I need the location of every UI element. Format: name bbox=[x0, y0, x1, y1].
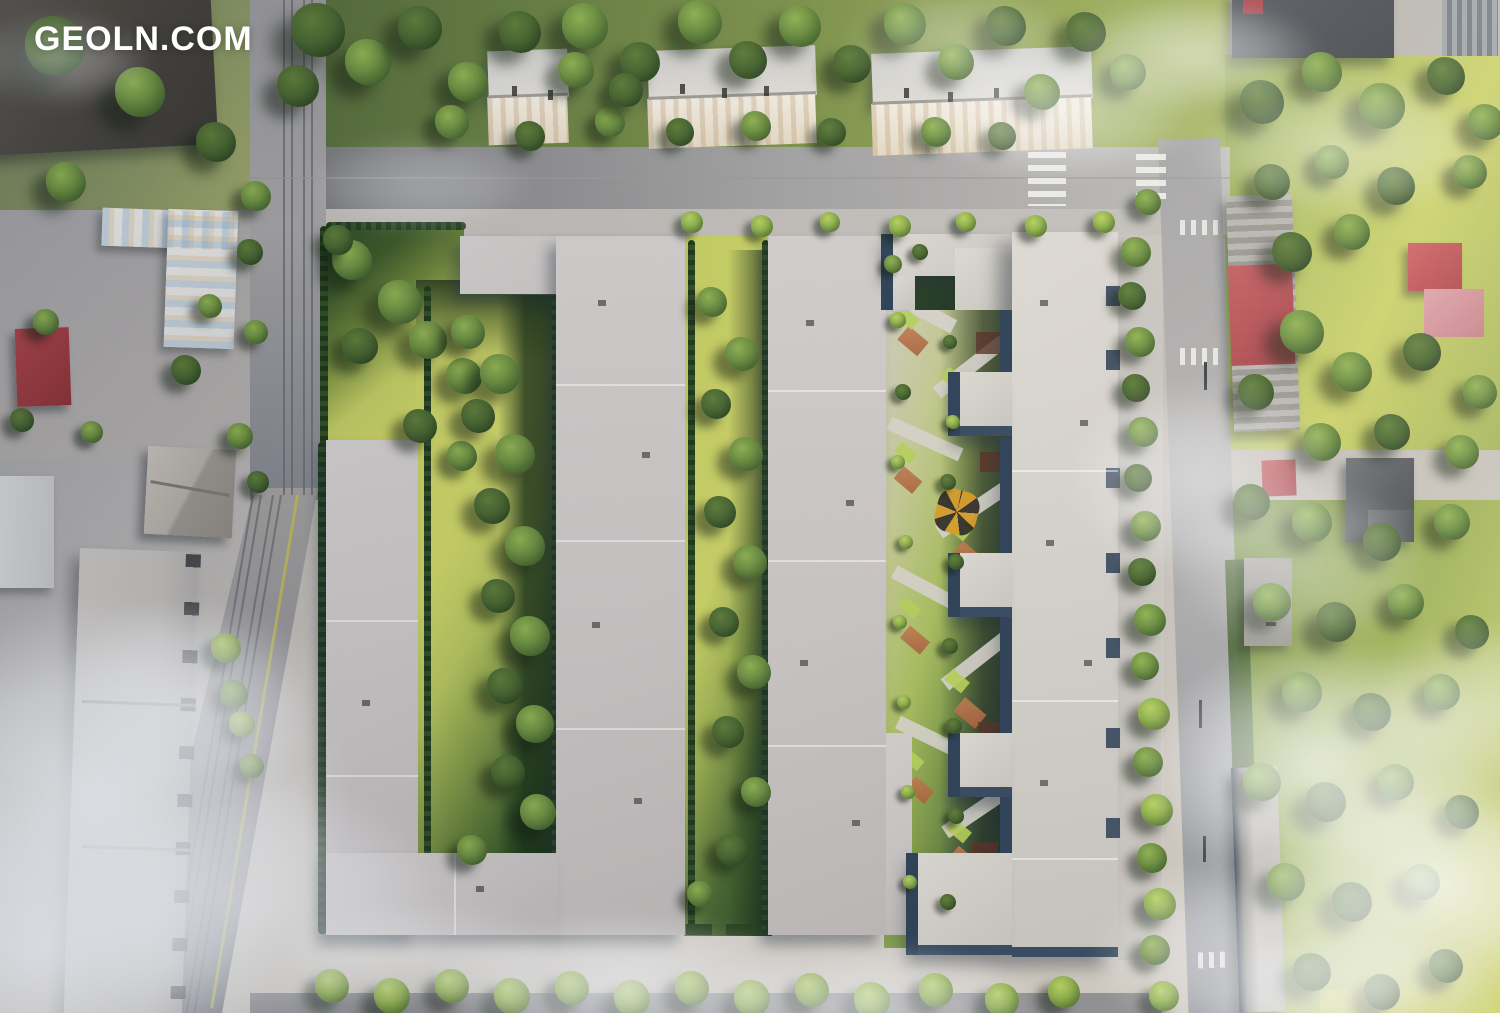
tree bbox=[891, 455, 905, 469]
crosswalk bbox=[1180, 220, 1220, 235]
tree bbox=[198, 294, 222, 318]
existing-house-roof-upper bbox=[487, 49, 569, 100]
tree bbox=[10, 408, 34, 432]
tree bbox=[940, 474, 956, 490]
tree bbox=[893, 615, 907, 629]
building-C-west-face bbox=[948, 733, 960, 797]
chimney bbox=[512, 86, 517, 96]
tree bbox=[520, 794, 556, 830]
tree bbox=[884, 255, 902, 273]
red-roof-house-right bbox=[1408, 243, 1462, 291]
chimney bbox=[548, 90, 553, 100]
roof-vent bbox=[800, 660, 808, 666]
tree bbox=[1374, 414, 1410, 450]
chimney bbox=[764, 86, 769, 96]
roof-seam bbox=[1012, 858, 1118, 860]
tree bbox=[33, 309, 59, 335]
tree bbox=[1332, 352, 1372, 392]
tree bbox=[890, 312, 906, 328]
pink-roof-house bbox=[1424, 289, 1484, 337]
tree bbox=[491, 755, 525, 789]
building-C-main bbox=[1012, 232, 1118, 955]
tree bbox=[737, 655, 771, 689]
tree bbox=[901, 785, 915, 799]
roof-vent bbox=[1040, 300, 1048, 306]
fog-cloud bbox=[10, 570, 370, 830]
roof-vent bbox=[1084, 660, 1092, 666]
tree bbox=[903, 875, 917, 889]
tree bbox=[1025, 215, 1047, 237]
tree bbox=[818, 118, 846, 146]
tree bbox=[171, 355, 201, 385]
roof-vent bbox=[1040, 780, 1048, 786]
tree bbox=[277, 65, 319, 107]
tree bbox=[946, 718, 962, 734]
tree bbox=[481, 579, 515, 613]
tree bbox=[701, 389, 731, 419]
tree bbox=[227, 423, 253, 449]
tree bbox=[940, 894, 956, 910]
tree bbox=[342, 328, 378, 364]
roof-seam bbox=[556, 728, 685, 730]
tree bbox=[943, 335, 957, 349]
tree bbox=[733, 545, 767, 579]
tree bbox=[562, 3, 608, 49]
roof-vent bbox=[806, 320, 814, 326]
tree bbox=[81, 421, 103, 443]
roof-seam bbox=[556, 540, 685, 542]
tree bbox=[510, 616, 550, 656]
building-C-west-face bbox=[1000, 310, 1012, 372]
tree bbox=[729, 437, 763, 471]
building-C-south-face bbox=[960, 426, 1012, 436]
tree bbox=[241, 181, 271, 211]
tree bbox=[704, 496, 736, 528]
tree bbox=[1463, 375, 1497, 409]
tree bbox=[895, 384, 911, 400]
tree bbox=[1135, 189, 1161, 215]
fog-cloud bbox=[240, 885, 600, 1013]
building-B-bar bbox=[768, 236, 886, 935]
building-C-west-face bbox=[1000, 437, 1012, 553]
tree bbox=[897, 695, 911, 709]
tree bbox=[609, 73, 643, 107]
tree bbox=[499, 11, 541, 53]
fog-cloud bbox=[270, 120, 570, 250]
tree bbox=[946, 415, 960, 429]
tree bbox=[409, 321, 447, 359]
tree bbox=[1280, 310, 1324, 354]
roof-vent bbox=[852, 820, 860, 826]
tree bbox=[291, 3, 345, 57]
tree bbox=[889, 215, 911, 237]
building-A-right-bar bbox=[556, 236, 685, 935]
tree bbox=[716, 834, 748, 866]
tree bbox=[244, 320, 268, 344]
tree bbox=[495, 434, 535, 474]
tree bbox=[709, 607, 739, 637]
tree bbox=[345, 39, 391, 85]
building-C-south-face bbox=[960, 787, 1012, 797]
building-C-top-wing-left bbox=[893, 276, 915, 310]
tree bbox=[505, 526, 545, 566]
striped-canopy-topright bbox=[1442, 0, 1498, 56]
tree bbox=[196, 122, 236, 162]
tree bbox=[447, 441, 477, 471]
tree bbox=[247, 471, 269, 493]
chimney bbox=[680, 84, 685, 94]
tree bbox=[666, 118, 694, 146]
tree bbox=[729, 41, 767, 79]
tree bbox=[1403, 333, 1441, 371]
tree bbox=[820, 212, 840, 232]
watermark-logo: GEOLN.COM bbox=[34, 20, 253, 59]
tree bbox=[1121, 237, 1151, 267]
tree bbox=[741, 111, 771, 141]
roof-vent bbox=[846, 500, 854, 506]
tree bbox=[899, 535, 913, 549]
tree bbox=[461, 399, 495, 433]
roof-seam bbox=[556, 384, 685, 386]
roof-vent bbox=[592, 622, 600, 628]
tree bbox=[697, 287, 727, 317]
tree bbox=[751, 215, 773, 237]
tree bbox=[678, 0, 722, 44]
mottle-texture bbox=[164, 209, 239, 349]
roof-vent bbox=[642, 452, 650, 458]
tree bbox=[558, 52, 594, 88]
tree bbox=[1093, 211, 1115, 233]
tree bbox=[237, 239, 263, 265]
red-roof-house bbox=[15, 327, 72, 407]
chimney bbox=[722, 88, 727, 98]
tree bbox=[595, 107, 625, 137]
balcony-notch bbox=[1106, 638, 1120, 658]
tree bbox=[487, 668, 523, 704]
tree bbox=[516, 705, 554, 743]
tree bbox=[446, 358, 482, 394]
tree bbox=[912, 244, 928, 260]
roof-seam bbox=[1012, 700, 1118, 702]
tree bbox=[712, 716, 744, 748]
hedge bbox=[424, 286, 431, 856]
roof-seam bbox=[326, 620, 418, 622]
tree bbox=[1125, 327, 1155, 357]
tree bbox=[474, 488, 510, 524]
tree bbox=[403, 409, 437, 443]
tree bbox=[956, 212, 976, 232]
tree bbox=[398, 6, 442, 50]
tree bbox=[1118, 282, 1146, 310]
building-C-west-face bbox=[1000, 617, 1012, 733]
roof-vent bbox=[634, 798, 642, 804]
tree bbox=[948, 808, 964, 824]
tree bbox=[725, 337, 759, 371]
tree bbox=[378, 280, 422, 324]
hedge bbox=[320, 226, 328, 451]
building-C-south-face bbox=[960, 607, 1012, 617]
tree bbox=[480, 354, 520, 394]
tree bbox=[942, 638, 958, 654]
roof-seam bbox=[768, 560, 886, 562]
hedge bbox=[688, 240, 695, 932]
tree bbox=[741, 777, 771, 807]
roof-vent bbox=[598, 300, 606, 306]
tree bbox=[1445, 435, 1479, 469]
aerial-site-render: GEOLN.COM bbox=[0, 0, 1500, 1013]
tree bbox=[681, 211, 703, 233]
roof-seam bbox=[768, 390, 886, 392]
tree bbox=[451, 315, 485, 349]
tree bbox=[948, 554, 964, 570]
building-C-west-face bbox=[1000, 797, 1012, 853]
tree bbox=[46, 162, 86, 202]
tree bbox=[448, 62, 488, 102]
roof-seam bbox=[768, 745, 886, 747]
building-C-top-wing-right bbox=[955, 248, 1012, 310]
